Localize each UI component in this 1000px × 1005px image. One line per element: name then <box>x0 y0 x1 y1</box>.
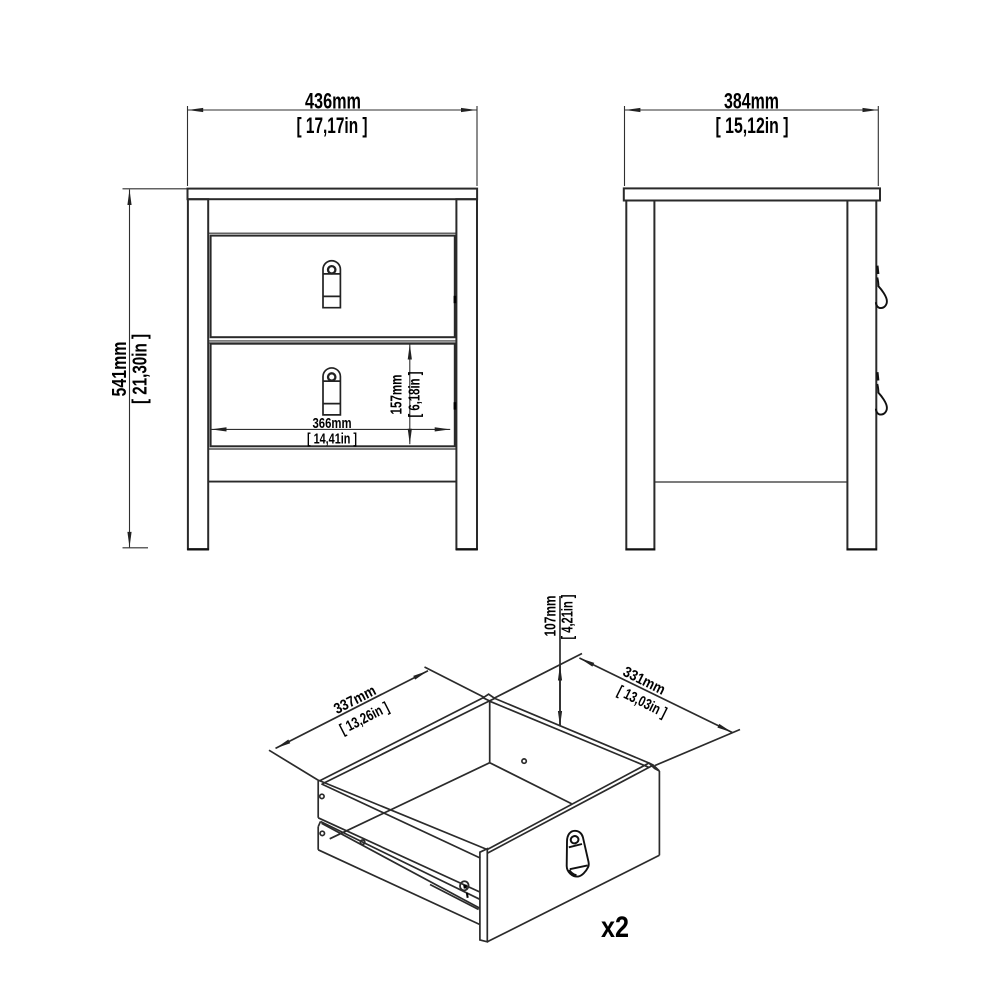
svg-text:x2: x2 <box>601 911 629 944</box>
svg-text:[ 21,30in ]: [ 21,30in ] <box>129 334 152 404</box>
svg-text:384mm: 384mm <box>724 89 779 114</box>
svg-text:[ 17,17in ]: [ 17,17in ] <box>297 113 368 138</box>
svg-text:436mm: 436mm <box>305 89 361 114</box>
svg-text:107mm: 107mm <box>543 596 560 637</box>
svg-text:[ 6,18in ]: [ 6,18in ] <box>407 372 424 418</box>
svg-text:[ 4,21in ]: [ 4,21in ] <box>560 595 577 640</box>
svg-text:366mm: 366mm <box>313 415 352 432</box>
svg-text:157mm: 157mm <box>389 375 406 415</box>
svg-text:[ 14,41in ]: [ 14,41in ] <box>307 431 357 448</box>
svg-text:[ 15,12in ]: [ 15,12in ] <box>716 113 789 138</box>
